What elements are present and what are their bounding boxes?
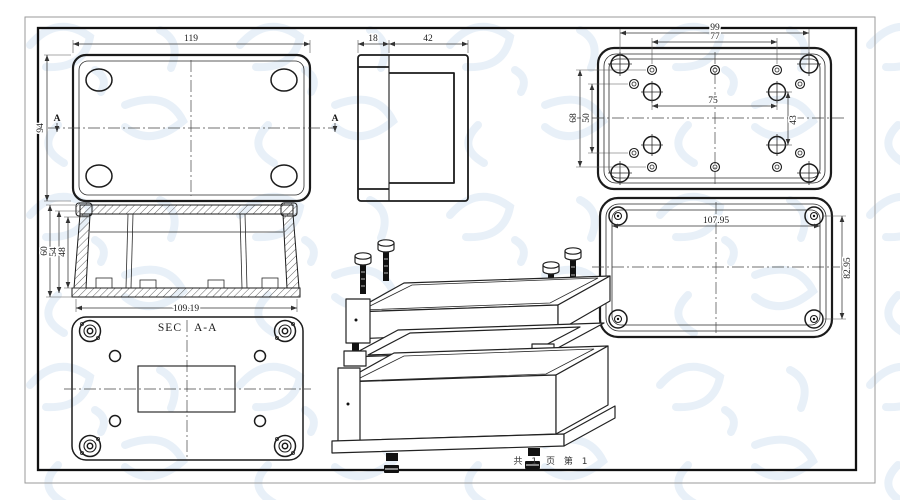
dim-50: 50 <box>582 113 592 123</box>
dim-68: 68 <box>569 113 579 123</box>
side-view-lid-dim: 18 <box>368 34 378 44</box>
top-view-width-dim: 119 <box>184 34 198 44</box>
section-top-flange <box>80 205 293 214</box>
dim-75: 75 <box>708 96 718 106</box>
section-label-aa: A-A <box>194 322 217 334</box>
dim-77: 77 <box>710 32 720 42</box>
engineering-drawing-canvas: A A 119 94 18 42 <box>0 0 900 500</box>
section-label-sec: SEC <box>158 322 182 334</box>
dim-43: 43 <box>789 115 799 125</box>
dim-109-19: 109.19 <box>173 304 199 314</box>
section-marker-left: A <box>54 114 61 124</box>
dim-82-95: 82.95 <box>843 257 853 279</box>
section-marker-right: A <box>332 114 339 124</box>
drawing-sheet: A A 119 94 18 42 <box>0 0 900 500</box>
dim-107-95: 107.95 <box>703 216 729 226</box>
page-footer-label: 共 1 页 第 1 <box>514 455 591 467</box>
side-view-base-dim: 42 <box>423 34 433 44</box>
top-view-height-dim: 94 <box>36 123 46 133</box>
dim-48: 48 <box>58 247 68 257</box>
section-bottom-wall <box>72 288 300 297</box>
